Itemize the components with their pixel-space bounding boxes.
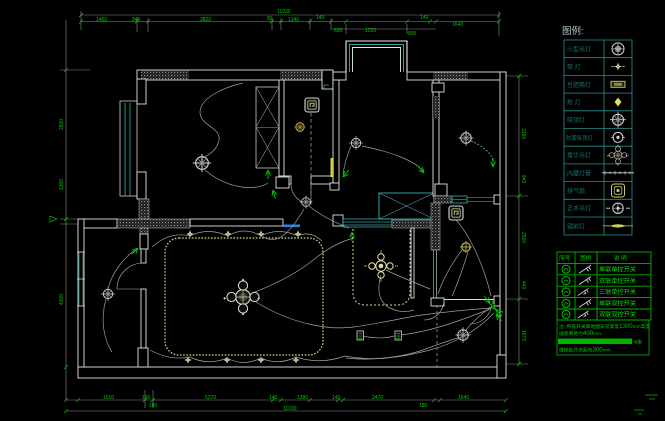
svg-text:防雾吸顶灯: 防雾吸顶灯 (566, 134, 594, 142)
svg-text:单联双控开关: 单联双控开关 (599, 300, 636, 308)
svg-text:1320: 1320 (365, 28, 376, 34)
svg-text:140: 140 (420, 15, 429, 21)
svg-text:940: 940 (520, 175, 526, 184)
svg-text:2500: 2500 (520, 232, 526, 243)
svg-text:2600: 2600 (59, 119, 65, 130)
svg-text:630: 630 (334, 28, 343, 34)
svg-text:140: 140 (332, 395, 341, 401)
svg-text:140: 140 (269, 395, 278, 401)
svg-text:说 明: 说 明 (614, 254, 627, 262)
svg-text:插座离地为400mm.: 插座离地为400mm. (559, 330, 602, 337)
svg-text:3160: 3160 (520, 128, 526, 139)
svg-text:双联双控开关: 双联双控开关 (599, 311, 636, 319)
svg-text:1670: 1670 (520, 330, 526, 341)
svg-text:注: 所有开关离地面安装高度1300mm高度: 注: 所有开关离地面安装高度1300mm高度 (559, 323, 650, 330)
svg-text:吸顶灯: 吸顶灯 (567, 116, 585, 124)
svg-text:镜前灯: 镜前灯 (567, 222, 585, 230)
svg-text:豪华吊灯: 豪华吊灯 (567, 152, 591, 160)
svg-text:豆胆筒灯: 豆胆筒灯 (567, 81, 591, 89)
svg-text:筒 灯: 筒 灯 (567, 63, 581, 71)
svg-text:5270: 5270 (205, 395, 216, 401)
svg-text:内藏灯管: 内藏灯管 (567, 169, 591, 177)
svg-text:三联单控开关: 三联单控开关 (599, 288, 636, 296)
svg-text:楼梯处开关距地300mm: 楼梯处开关距地300mm (559, 347, 611, 354)
svg-text:1640: 1640 (458, 395, 469, 401)
svg-text:小型吊灯: 小型吊灯 (567, 45, 591, 53)
svg-text:序号: 序号 (559, 254, 571, 262)
svg-text:1640: 1640 (452, 22, 463, 28)
svg-text:单联单控开关: 单联单控开关 (599, 265, 636, 273)
svg-text:1460: 1460 (96, 17, 107, 23)
svg-text:180: 180 (149, 403, 158, 409)
svg-text:1380: 1380 (297, 395, 308, 401)
svg-text:艺术吊灯: 艺术吊灯 (567, 205, 591, 213)
svg-text:射 灯: 射 灯 (567, 99, 581, 107)
svg-text:160: 160 (142, 395, 151, 401)
svg-text:1510: 1510 (103, 395, 114, 401)
svg-text:图例: 图例 (580, 254, 592, 262)
svg-text:4米: 4米 (634, 338, 643, 346)
svg-text:11030: 11030 (283, 406, 297, 412)
svg-text:1340: 1340 (288, 17, 299, 23)
svg-text:3820: 3820 (200, 17, 211, 23)
svg-text:双联单控开关: 双联单控开关 (599, 277, 636, 285)
svg-text:180: 180 (419, 403, 428, 409)
svg-text:4300: 4300 (59, 294, 65, 305)
svg-text:800: 800 (408, 31, 417, 37)
svg-text:2470: 2470 (372, 395, 383, 401)
svg-text:11030: 11030 (277, 9, 291, 15)
svg-text:80: 80 (267, 16, 273, 22)
svg-text:排气扇: 排气扇 (567, 187, 585, 195)
svg-text:图例:: 图例: (562, 25, 584, 37)
svg-text:1300: 1300 (59, 179, 65, 190)
svg-text:140: 140 (316, 15, 325, 21)
svg-text:440: 440 (520, 281, 526, 290)
svg-text:940: 940 (132, 17, 141, 23)
